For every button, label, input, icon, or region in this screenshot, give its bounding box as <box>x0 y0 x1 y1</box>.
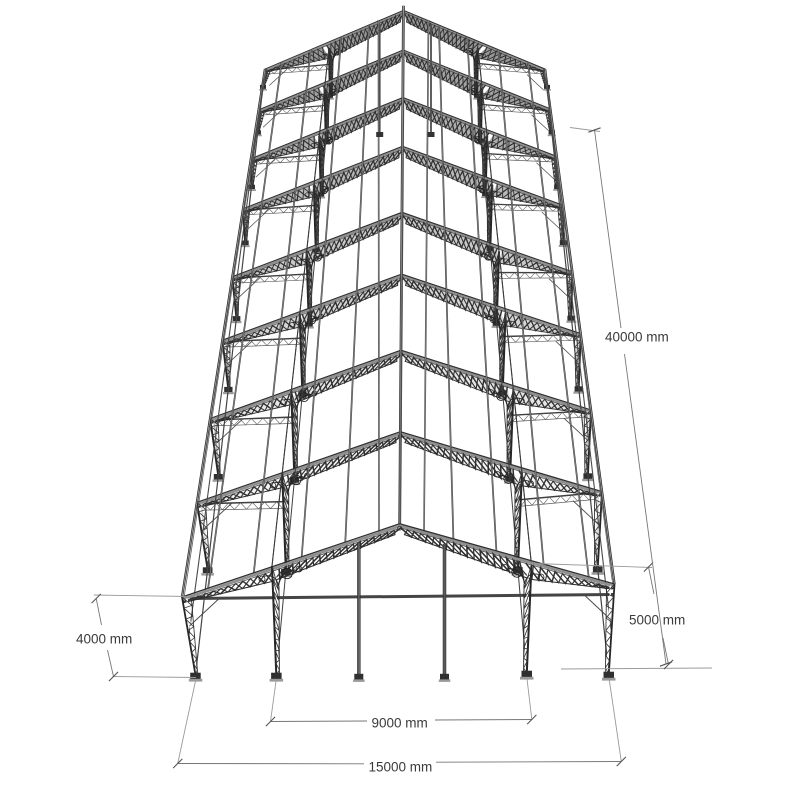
svg-text:15000 mm: 15000 mm <box>369 759 433 774</box>
svg-text:40000 mm: 40000 mm <box>605 330 669 345</box>
svg-text:9000 mm: 9000 mm <box>372 715 428 730</box>
svg-text:5000 mm: 5000 mm <box>629 613 685 628</box>
svg-text:4000 mm: 4000 mm <box>76 632 132 647</box>
